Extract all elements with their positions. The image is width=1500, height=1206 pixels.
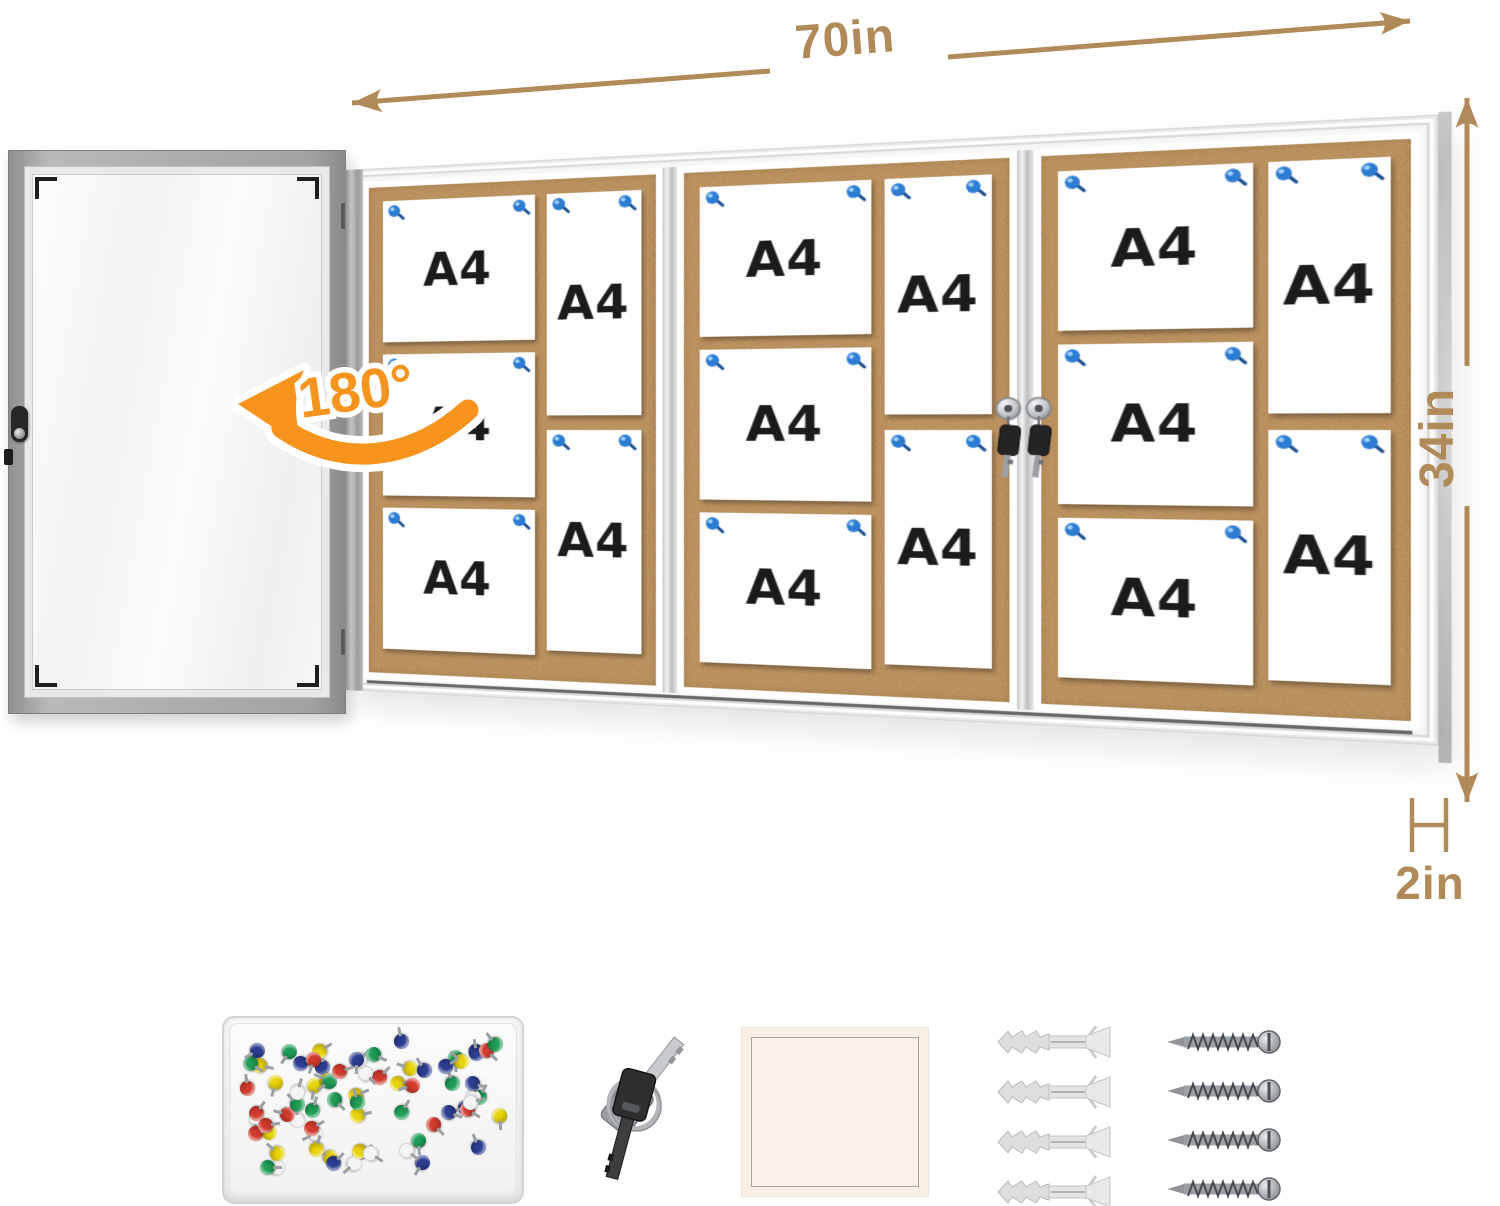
- loose-push-pin: [303, 1101, 322, 1120]
- loose-push-pin: [439, 1103, 458, 1122]
- paper-label: A4: [557, 276, 630, 331]
- paper-label: A4: [746, 231, 824, 289]
- board-panel: A4A4A4A4A4: [1033, 131, 1419, 729]
- cork-surface: A4A4A4A4A4: [369, 174, 656, 685]
- door-glass-panel: [32, 174, 322, 690]
- loose-push-pin: [389, 1075, 406, 1092]
- board-hinge-strip: [345, 169, 363, 691]
- paper-label: A4: [1283, 525, 1377, 588]
- board-panel: A4A4A4A4A4: [363, 168, 663, 693]
- push-pin-icon: [704, 515, 724, 535]
- push-pin-icon: [551, 196, 570, 216]
- bulletin-board: A4A4A4A4A4A4A4A4A4A4A4A4A4A4A4: [345, 115, 1438, 746]
- loose-push-pin: [349, 1051, 364, 1066]
- loose-push-pin: [403, 1076, 422, 1095]
- push-pin-icon: [845, 183, 867, 204]
- paper-label: A4: [897, 266, 979, 325]
- paper-label: A4: [897, 519, 979, 578]
- push-pin-icon: [387, 203, 405, 222]
- a4-paper: A4: [1269, 157, 1392, 413]
- push-pin-icon: [889, 432, 911, 452]
- push-pin-icon: [964, 177, 986, 198]
- door-latch-tab: [4, 449, 13, 465]
- cork-surface: A4A4A4A4A4: [684, 158, 1009, 702]
- push-pin-box: [222, 1016, 524, 1204]
- panel-divider: [1017, 150, 1034, 710]
- push-pin-icon: [1224, 523, 1249, 545]
- note-square: [742, 1028, 928, 1196]
- a4-paper: A4: [884, 175, 991, 414]
- a4-paper: A4: [700, 180, 872, 337]
- height-dimension-label: 34in: [1409, 360, 1467, 516]
- paper-label: A4: [423, 243, 492, 297]
- a4-paper: A4: [1058, 163, 1253, 331]
- push-pin-icon: [511, 512, 530, 531]
- paper-label: A4: [1110, 395, 1199, 455]
- loose-push-pin: [443, 1073, 462, 1092]
- cam-locks-with-keys: [992, 396, 1058, 507]
- a4-paper: A4: [383, 353, 535, 498]
- keys-icon: [572, 1012, 722, 1206]
- push-pin-icon: [1274, 164, 1299, 186]
- a4-paper: A4: [383, 508, 535, 655]
- paper-label: A4: [746, 397, 824, 453]
- push-pin-icon: [1224, 344, 1249, 365]
- a4-paper: A4: [884, 430, 991, 669]
- depth-dimension-label: 2in: [1382, 856, 1478, 910]
- push-pin-icon: [1360, 160, 1386, 183]
- push-pin-icon: [617, 193, 637, 213]
- push-pin-icon: [387, 510, 405, 528]
- paper-label: A4: [557, 514, 630, 569]
- paper-label: A4: [423, 553, 492, 607]
- a4-paper: A4: [546, 430, 641, 654]
- a4-paper: A4: [1058, 342, 1253, 507]
- paper-label: A4: [1110, 217, 1199, 279]
- a4-paper: A4: [700, 512, 872, 669]
- loose-push-pin: [323, 1089, 344, 1110]
- paper-label: A4: [1283, 255, 1377, 318]
- push-pin-icon: [511, 355, 530, 374]
- push-pin-icon: [964, 432, 986, 452]
- board-panel: A4A4A4A4A4: [678, 151, 1017, 710]
- push-pin-icon: [1063, 347, 1086, 368]
- product-diagram-scene: A4A4A4A4A4A4A4A4A4A4A4A4A4A4A4 180° 70in…: [0, 0, 1500, 1206]
- board-panels: A4A4A4A4A4A4A4A4A4A4A4A4A4A4A4: [363, 131, 1420, 729]
- push-pin-icon: [1063, 173, 1086, 195]
- loose-push-pin: [267, 1073, 285, 1091]
- door-corner-bracket: [297, 177, 319, 199]
- push-pin-icon: [889, 181, 911, 202]
- width-dimension-label: 70in: [750, 5, 940, 74]
- push-pin-icon: [1274, 432, 1299, 453]
- loose-push-pin: [469, 1137, 489, 1157]
- door-corner-bracket: [35, 177, 57, 199]
- push-pin-icon: [1063, 520, 1086, 541]
- loose-push-pin: [239, 1080, 256, 1097]
- wall-anchors-icon: [994, 1020, 1122, 1206]
- loose-push-pin: [492, 1108, 508, 1124]
- note-square-inner: [751, 1037, 919, 1187]
- door-corner-bracket: [297, 665, 319, 687]
- loose-push-pin: [436, 1057, 457, 1078]
- paper-label: A4: [423, 399, 492, 451]
- push-pin-icon: [1360, 432, 1386, 454]
- a4-paper: A4: [1269, 430, 1392, 685]
- a4-paper: A4: [546, 190, 641, 415]
- push-pin-icon: [387, 356, 405, 374]
- screws-icon: [1162, 1020, 1294, 1206]
- depth-bracket-icon: [1412, 798, 1446, 852]
- push-pin-icon: [704, 189, 724, 209]
- push-pin-icon: [845, 350, 867, 370]
- a4-paper: A4: [1058, 518, 1253, 685]
- door-corner-bracket: [35, 665, 57, 687]
- loose-push-pin: [392, 1033, 410, 1051]
- panel-divider: [663, 167, 678, 693]
- push-pin-icon: [845, 517, 867, 537]
- open-door: [8, 150, 346, 714]
- loose-push-pin: [391, 1102, 412, 1123]
- paper-label: A4: [1110, 570, 1199, 632]
- push-pin-icon: [511, 197, 530, 216]
- door-lock: [11, 406, 28, 442]
- cork-surface: A4A4A4A4A4: [1041, 139, 1411, 721]
- push-pin-icon: [617, 432, 637, 451]
- push-pin-icon: [1224, 166, 1249, 188]
- a4-paper: A4: [383, 195, 535, 343]
- loose-push-pin: [260, 1160, 275, 1175]
- a4-paper: A4: [700, 348, 872, 502]
- paper-label: A4: [746, 561, 824, 619]
- push-pin-icon: [704, 352, 724, 372]
- push-pin-icon: [551, 432, 570, 451]
